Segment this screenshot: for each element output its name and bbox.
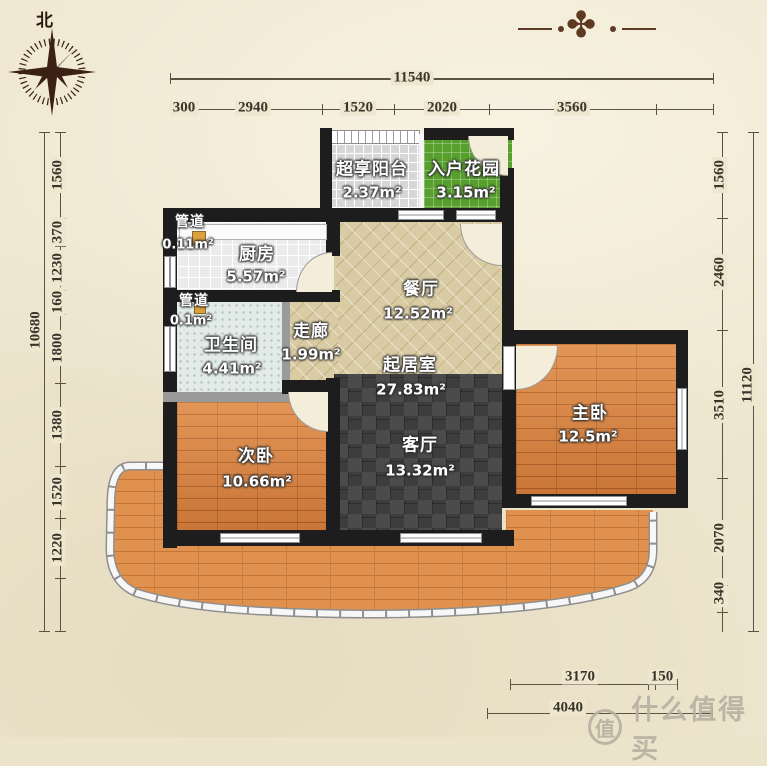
right-segment-line — [722, 132, 723, 632]
wall — [502, 330, 688, 344]
room-name: 起居室 — [383, 358, 437, 375]
tick — [489, 104, 490, 115]
dim-label: 1560 — [713, 157, 728, 193]
room-name: 客厅 — [402, 438, 438, 455]
dim-label: 340 — [713, 579, 728, 608]
dim-label: 4040 — [550, 701, 586, 716]
tick — [55, 578, 66, 579]
room-area: 27.83m² — [376, 383, 446, 398]
tick — [394, 104, 395, 115]
tick — [55, 466, 66, 467]
tick — [713, 73, 714, 84]
tick — [717, 330, 728, 331]
wall — [326, 378, 340, 532]
unit-divider — [419, 134, 424, 212]
tick — [170, 73, 171, 84]
floorplan-canvas: 北 ✤ — [0, 0, 767, 737]
tick — [55, 132, 66, 133]
room-area: 1.99m² — [281, 348, 340, 363]
tick — [55, 383, 66, 384]
dim-label: 3170 — [562, 670, 598, 685]
dim-label: 2940 — [235, 101, 271, 116]
tick — [510, 679, 511, 690]
room-name: 入户花园 — [428, 162, 500, 179]
top-total-line — [170, 78, 714, 80]
dim-label: 3560 — [554, 101, 590, 116]
room-name: 管道 — [179, 294, 209, 308]
dim-label: 1230 — [51, 250, 66, 286]
wall — [326, 208, 340, 256]
dim-label: 1520 — [340, 101, 376, 116]
room-name: 卫生间 — [204, 338, 258, 355]
tick — [55, 518, 66, 519]
wall — [320, 128, 332, 212]
tick — [713, 104, 714, 115]
window — [531, 496, 627, 506]
room-area: 10.66m² — [222, 475, 292, 490]
window — [164, 256, 176, 288]
tick — [717, 132, 728, 133]
room-area: 0.1m² — [170, 315, 212, 328]
dim-label: 10680 — [29, 308, 44, 352]
room-area: 2.37m² — [342, 186, 401, 201]
dim-label: 3510 — [713, 387, 728, 423]
dim-label: 11540 — [391, 71, 434, 86]
room-name: 厨房 — [239, 247, 275, 264]
wall — [502, 208, 514, 340]
room-name: 超享阳台 — [336, 162, 408, 179]
watermark: 值 什么值得买 — [588, 688, 767, 766]
dim-label: 300 — [170, 101, 199, 116]
dim-label: 370 — [51, 218, 66, 247]
room-name: 餐厅 — [403, 282, 439, 299]
watermark-text: 什么值得买 — [631, 688, 767, 766]
window — [456, 210, 496, 220]
tick — [717, 218, 728, 219]
room-area: 0.11m² — [162, 239, 213, 252]
dim-label: 1220 — [51, 530, 66, 566]
smzdm-logo-icon: 值 — [588, 709, 622, 745]
dim-label: 1560 — [51, 157, 66, 193]
room-name: 次卧 — [238, 449, 274, 466]
room-area: 5.57m² — [226, 270, 285, 285]
dim-label: 160 — [51, 288, 66, 317]
window — [400, 533, 482, 543]
room-area: 4.41m² — [202, 362, 261, 377]
dim-label: 2070 — [713, 520, 728, 556]
room-area: 13.32m² — [385, 464, 455, 479]
dim-label: 11120 — [741, 364, 756, 406]
tick — [748, 132, 759, 133]
tick — [322, 104, 323, 115]
tick — [55, 631, 66, 632]
room-area: 3.15m² — [436, 186, 495, 201]
window — [677, 388, 687, 450]
window — [220, 533, 300, 543]
balcony-railing — [322, 130, 420, 144]
tick — [39, 631, 50, 632]
room-name: 主卧 — [572, 406, 608, 423]
dim-label: 150 — [648, 670, 677, 685]
tick — [717, 478, 728, 479]
door-leaf — [503, 346, 515, 390]
dim-label: 1800 — [51, 330, 66, 366]
tick — [487, 708, 488, 719]
dim-label: 1380 — [51, 407, 66, 443]
dim-label: 1520 — [51, 474, 66, 510]
room-name: 走廊 — [293, 324, 329, 341]
window — [164, 326, 176, 372]
partition-wall — [163, 392, 290, 402]
dim-label: 2020 — [424, 101, 460, 116]
window — [398, 210, 444, 220]
tick — [748, 631, 759, 632]
tick — [656, 104, 657, 115]
left-total-line — [44, 132, 45, 632]
room-name: 管道 — [175, 215, 205, 229]
dim-label: 2460 — [713, 254, 728, 290]
room-area: 12.52m² — [383, 307, 453, 322]
tick — [717, 612, 728, 613]
tick — [39, 132, 50, 133]
room-area: 12.5m² — [558, 430, 617, 445]
